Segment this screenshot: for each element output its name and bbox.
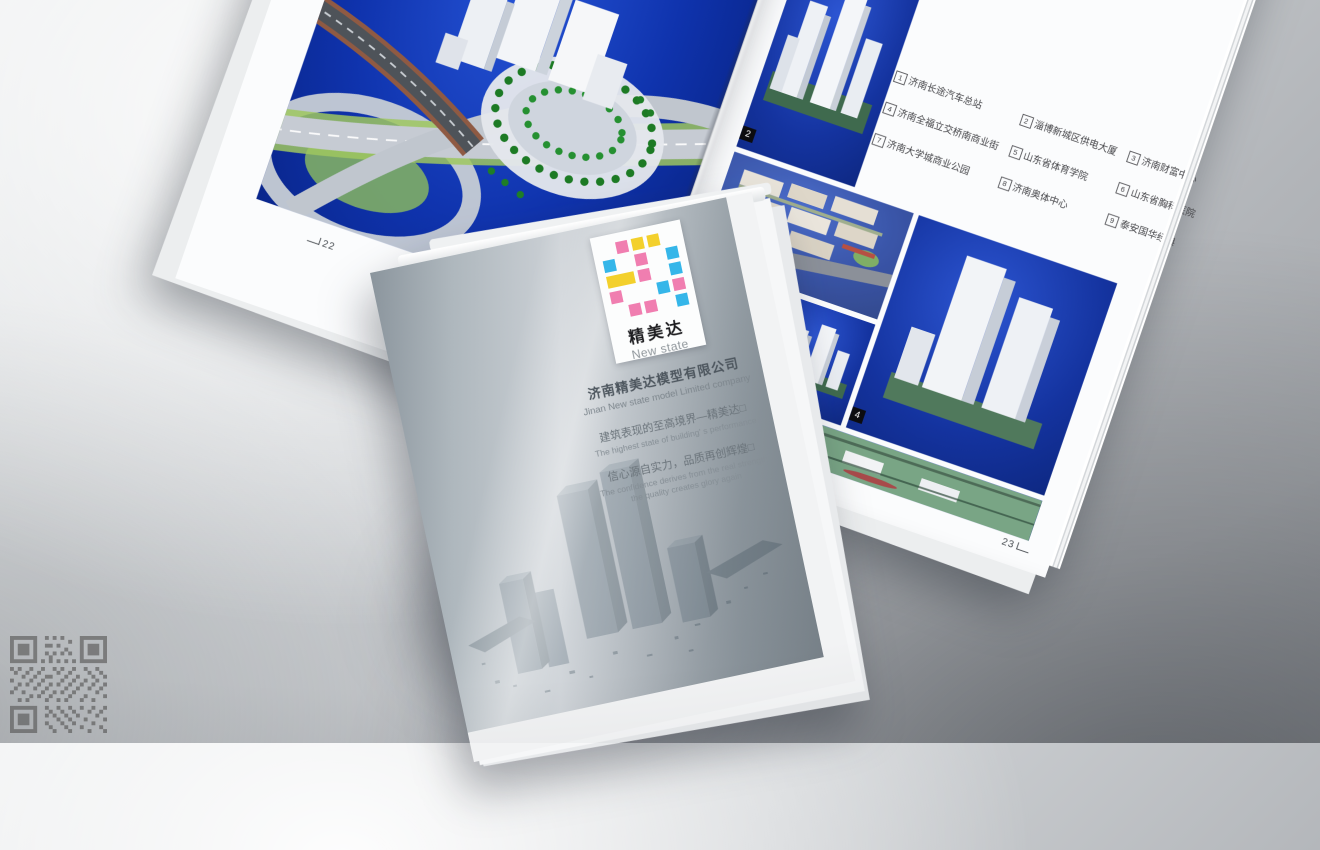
legend-column: 2淄博新城区供电大厦 5山东省体育学院 8济南奥体中心 [997, 113, 1119, 222]
legend-label: 济南长途汽车总站 [907, 74, 985, 112]
legend-label: 淄博新城区供电大厦 [1032, 118, 1119, 159]
legend-number: 8 [997, 176, 1012, 191]
legend-number: 1 [893, 70, 908, 85]
legend-label: 济南大学城商业公园 [885, 137, 972, 178]
legend-number: 9 [1104, 213, 1119, 228]
legend-label: 济南奥体中心 [1011, 180, 1070, 212]
qr-watermark [10, 636, 107, 733]
legend-number: 6 [1115, 182, 1130, 197]
photo-backdrop: { "scene": { "description": "studio phot… [0, 0, 1320, 743]
logo-mosaic-icon [599, 230, 689, 320]
legend-number: 2 [1019, 114, 1034, 129]
legend-number: 3 [1126, 151, 1141, 166]
page-corner-mark [1016, 542, 1031, 553]
page-corner-mark [307, 234, 322, 245]
newstate-logo-card: 精美达 New state [590, 219, 707, 363]
legend-number: 7 [871, 133, 886, 148]
legend-label: 山东省体育学院 [1021, 149, 1089, 184]
page-number-22: 22 [306, 233, 337, 253]
legend-number: 4 [882, 102, 897, 117]
legend-column: 1济南长途汽车总站 4济南全福立交桥南商业街 7济南大学城商业公园 [871, 69, 1011, 184]
legend-number: 5 [1008, 145, 1023, 160]
